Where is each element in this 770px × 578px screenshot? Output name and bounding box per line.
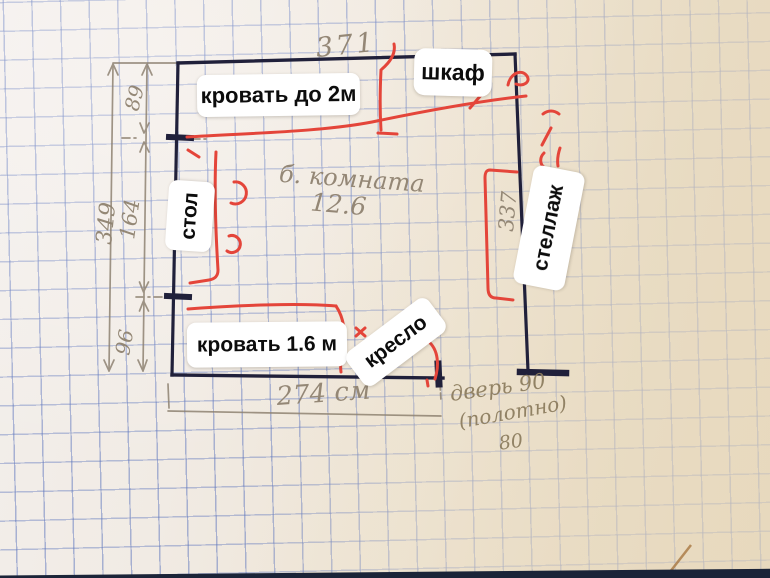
label-shelving-text: стеллаж [529,183,569,273]
bed-small-front-line [188,305,336,309]
right-margin-squiggles [541,111,560,168]
dim-left-upper-text: 89 [120,82,150,113]
window-tick-lower [167,296,189,297]
door-leaf-width-text: 80 [497,430,524,455]
armchair-arc [428,341,437,379]
wall-bottom [172,375,443,378]
dim-top-width-text: 371 [314,27,377,64]
desk-top-hook [188,150,199,157]
label-bed-small: кровать 1.6 м [187,321,347,367]
label-bed-small-text: кровать 1.6 м [197,332,337,357]
dim-left-lower-text: 96 [110,327,138,357]
shelving-bracket [485,170,517,300]
dim-right-shelf-text: 337 [494,190,521,233]
bottom-extension-line [168,384,169,408]
label-desk-text: стол [176,192,203,241]
wardrobe-side-line [378,70,397,134]
label-bed-large: кровать до 2м [197,73,361,117]
label-wardrobe-text: шкаф [421,58,485,87]
chair-arc-lower [227,236,240,253]
chair-arc-upper [231,182,246,204]
dim-left-middle-text: 164 [115,198,144,241]
dim-line-bottom [168,411,441,416]
floorplan-photo: 371 б. комната 12.6 349 164 89 96 337 27… [0,0,770,578]
label-wardrobe: шкаф [413,48,492,97]
red-cross-mark [356,328,365,336]
label-desk: стол [165,179,216,252]
sketch-layer: 371 б. комната 12.6 349 164 89 96 337 27… [0,0,770,578]
door-red-dash [427,380,428,386]
label-bed-large-text: кровать до 2м [200,81,356,109]
dim-bottom-width-text: 274 см [274,375,371,412]
room-area-text: 12.6 [309,188,367,222]
corner-scribble [508,72,528,85]
